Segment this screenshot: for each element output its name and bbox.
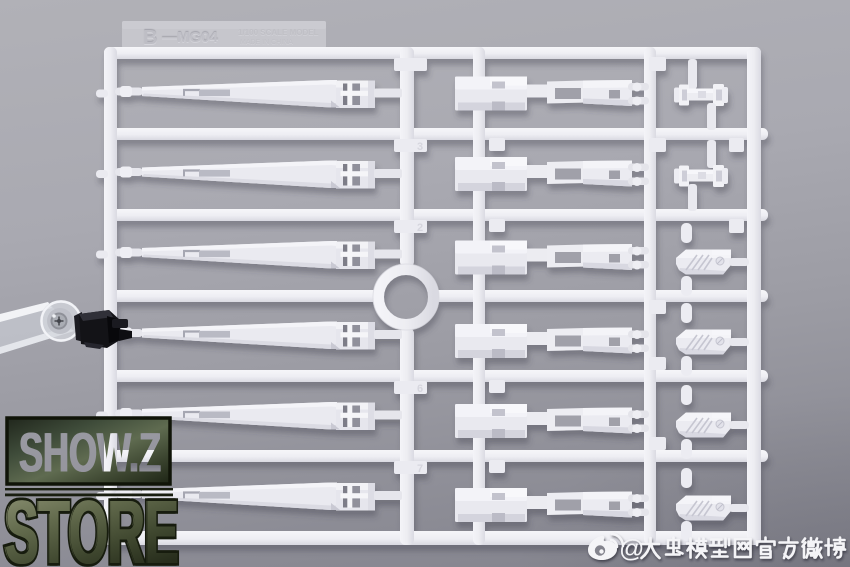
svg-text:—MG04: —MG04 bbox=[162, 29, 219, 46]
svg-text:MADE IN CHINA: MADE IN CHINA bbox=[240, 39, 293, 46]
svg-text:STORE: STORE bbox=[4, 483, 178, 567]
svg-text:1/100 SCALE MODEL: 1/100 SCALE MODEL bbox=[238, 28, 319, 37]
svg-text:B: B bbox=[143, 27, 157, 49]
svg-text:6: 6 bbox=[417, 383, 423, 395]
svg-text:2: 2 bbox=[417, 222, 423, 234]
svg-text:3: 3 bbox=[417, 141, 423, 153]
svg-text:7: 7 bbox=[417, 463, 423, 475]
